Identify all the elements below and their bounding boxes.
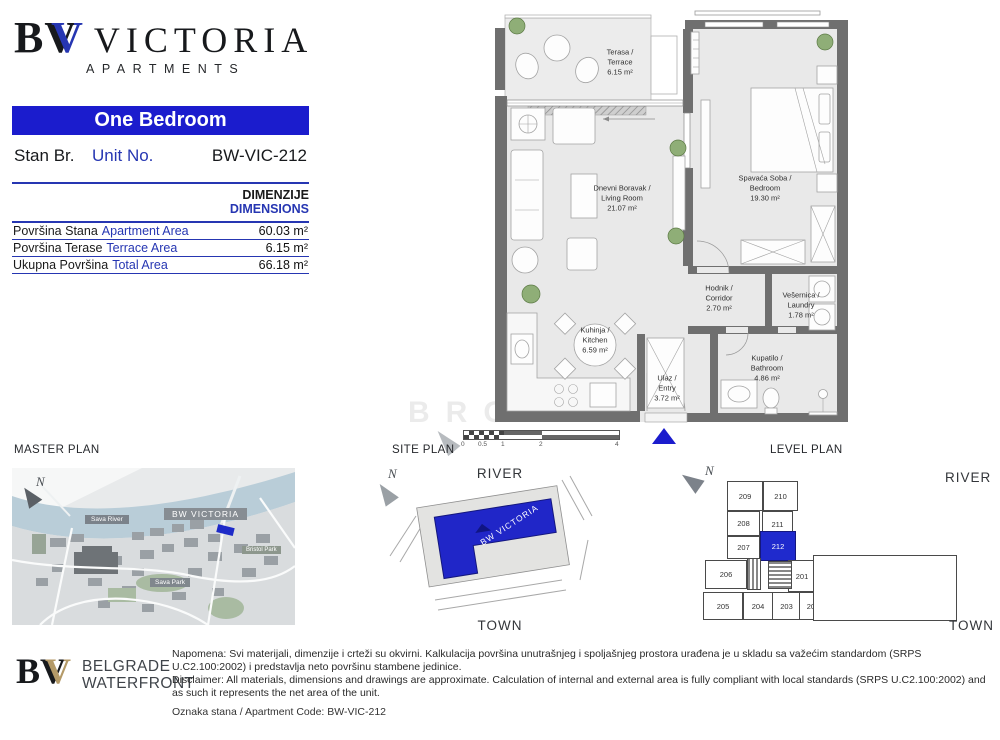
unit-type-label: One Bedroom: [94, 109, 226, 132]
table-row: Površina Terase Terrace Area 6.15 m²: [12, 240, 309, 257]
unit-201: 201: [788, 560, 816, 592]
building-wing: [813, 555, 957, 621]
row-label-en: Terrace Area: [106, 241, 177, 255]
row-label-sr: Površina Stana: [13, 224, 98, 238]
unit-210: 210: [763, 481, 798, 511]
north-label: N: [36, 474, 45, 490]
unit-204: 204: [743, 592, 773, 620]
room-label-bathroom: Kupatilo /Bathroom4.86 m²: [751, 353, 784, 382]
logo-subtitle: APARTMENTS: [86, 62, 245, 76]
dimensions-header: DIMENZIJE DIMENSIONS: [12, 189, 309, 216]
map-label-bw-victoria: BW VICTORIA: [164, 508, 247, 520]
row-value: 66.18 m²: [259, 258, 308, 272]
room-label-laundry: Vešernica /Laundry1.78 m²: [782, 290, 819, 319]
dimensions-title-sr: DIMENZIJE: [12, 189, 309, 203]
unit-212-highlighted: 212: [760, 531, 796, 561]
town-label: TOWN: [949, 618, 994, 633]
stairs: [768, 561, 792, 589]
divider-rule: [12, 182, 309, 184]
river-label: RIVER: [945, 470, 991, 485]
footer-note: Napomena: Svi materijali, dimenzije i cr…: [172, 648, 992, 700]
room-label-entry: Ulaz /Entry3.72 m²: [654, 373, 679, 402]
footer-logo-b: B: [16, 651, 40, 691]
master-plan-map: Sava River BW VICTORIA Bristol Park Sava…: [12, 468, 295, 625]
note-english: Disclaimer: All materials, dimensions an…: [172, 674, 992, 700]
unit-209: 209: [727, 481, 763, 511]
row-label-en: Total Area: [112, 258, 168, 272]
room-label-terrace: Terasa /Terrace6.15 m²: [607, 47, 634, 76]
unit-207: 207: [727, 536, 760, 559]
room-label-bedroom: Spavaća Soba /Bedroom19.30 m²: [739, 173, 792, 202]
master-plan-title: MASTER PLAN: [14, 444, 100, 456]
brochure-page: BVVVICTORIA APARTMENTS One Bedroom Stan …: [0, 0, 1000, 740]
unit-203: 203: [772, 592, 801, 620]
logo-letter-b: B: [14, 13, 44, 62]
logo-name: VICTORIA: [94, 20, 313, 60]
room-label-living: Dnevni Boravak /Living Room21.07 m²: [593, 183, 650, 212]
map-label-sava-river: Sava River: [85, 515, 129, 524]
north-arrow-icon: [677, 468, 704, 494]
map-label-sava-park: Sava Park: [150, 578, 190, 587]
scale-bar: [463, 430, 620, 440]
stan-label: Stan Br.: [14, 146, 74, 166]
room-label-corridor: Hodnik /Corridor2.70 m²: [705, 283, 733, 312]
row-label-sr: Površina Terase: [13, 241, 102, 255]
unit-type-banner: One Bedroom: [12, 106, 309, 135]
dimensions-table: Površina Stana Apartment Area 60.03 m² P…: [12, 221, 309, 274]
town-label: TOWN: [440, 618, 560, 633]
dimensions-title-en: DIMENSIONS: [12, 203, 309, 217]
apartment-code-line: Oznaka stana / Apartment Code: BW-VIC-21…: [172, 706, 386, 718]
footer-logo-v2: V: [45, 651, 71, 691]
floorplan-drawing: [495, 8, 855, 433]
elevator-shaft: [747, 558, 761, 590]
floorplan: Terasa /Terrace6.15 m² Dnevni Boravak /L…: [495, 8, 855, 433]
unit-no-label: Unit No.: [92, 146, 153, 166]
table-row: Površina Stana Apartment Area 60.03 m²: [12, 223, 309, 240]
row-label-en: Apartment Area: [102, 224, 189, 238]
scale-ticks: 0 0.5 1 2 4: [463, 441, 633, 451]
north-label: N: [705, 463, 714, 479]
entry-marker-icon: [652, 428, 676, 444]
level-plan: N RIVER 209 210 208 211 207 212 206 201 …: [683, 458, 993, 638]
brand-logo: BVVVICTORIA: [14, 12, 313, 63]
table-row: Ukupna Površina Total Area 66.18 m²: [12, 257, 309, 274]
note-serbian: Napomena: Svi materijali, dimenzije i cr…: [172, 648, 992, 674]
unit-code: BW-VIC-212: [212, 146, 307, 166]
row-value: 60.03 m²: [259, 224, 308, 238]
level-plan-title: LEVEL PLAN: [770, 444, 843, 456]
site-plan-title: SITE PLAN: [392, 444, 454, 456]
footer-logo: BVV: [16, 650, 71, 692]
unit-number-row: Stan Br. Unit No. BW-VIC-212: [12, 140, 309, 172]
row-label-sr: Ukupna Površina: [13, 258, 108, 272]
room-label-kitchen: Kuhinja /Kitchen6.59 m²: [580, 325, 609, 354]
unit-208: 208: [727, 511, 760, 536]
site-plan: N RIVER BW VICTORIA TOWN: [380, 458, 620, 646]
row-value: 6.15 m²: [266, 241, 308, 255]
logo-letter-v2: V: [51, 13, 84, 62]
map-label-bristol-park: Bristol Park: [242, 546, 281, 554]
unit-205: 205: [703, 592, 743, 620]
unit-206: 206: [705, 560, 747, 589]
